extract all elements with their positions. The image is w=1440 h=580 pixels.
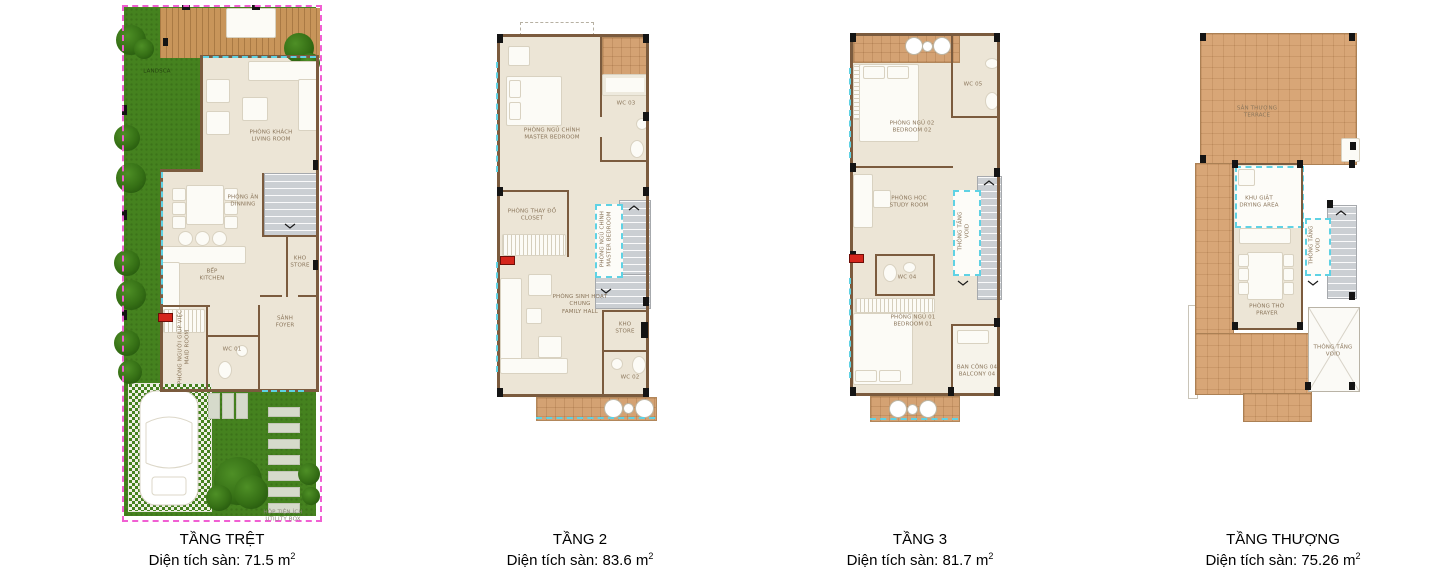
window-glass [849,68,853,158]
void-label-2: THÔNG TẦNGVOID [1314,345,1353,360]
column [1305,382,1311,390]
wardrobe [855,298,935,313]
room-label-maid: PHÒNG NGƯỜI GIÚP VIỆCMAID ROOM [178,310,193,384]
stair-arrow-icon [1307,280,1319,287]
balcony-table [907,404,918,415]
window-glass [496,262,500,372]
wall [951,33,953,118]
wall [600,37,602,117]
caption-floor-3: TẦNG 3 Diện tích sàn: 81.7 m2 [770,531,1070,569]
toilet [630,140,644,158]
void-label-master: PHÒNG NGỦ CHÍNHMASTER BEDROOM [600,211,615,267]
armchair [528,274,552,296]
column [643,34,649,43]
room-label-balcony04: BAN CÔNG 04BALCONY 04 [957,365,997,380]
caption-floor-2: TẦNG 2 Diện tích sàn: 83.6 m2 [430,531,730,569]
column [1200,33,1206,41]
stair-arrow-icon [957,280,969,287]
wall [875,294,935,296]
wall [997,33,1000,396]
wall [850,166,953,168]
wall [646,34,649,397]
plan-area: Diện tích sàn: 81.7 m2 [770,551,1070,569]
column [497,34,503,43]
column [1349,292,1355,300]
sink [903,262,916,273]
chair [873,190,891,208]
sink [611,358,623,370]
room-label-utility-box: HỘP TIỆN ÍCHUTILITY BOX [263,510,302,525]
balcony-rail-glass [536,417,655,421]
stair-arrow-icon [628,205,640,212]
room-label-landscape: LANDSCA [143,68,170,75]
dimension-marker [500,256,515,265]
room-label-bedroom01: PHÒNG NGỦ 01BEDROOM 01 [891,315,936,330]
column [643,297,649,306]
wall [1232,163,1234,330]
wall [1232,163,1303,165]
balcony-chair [604,399,623,418]
column [850,387,856,396]
balcony-chair [919,400,937,418]
pillow [855,370,877,382]
wardrobe [502,234,566,256]
terrace-bottom [1195,333,1312,395]
wall [951,324,1000,326]
column [1349,382,1355,390]
wc03-tile [602,37,648,75]
room-label-master-bedroom: PHÒNG NGỦ CHÍNHMASTER BEDROOM [524,128,580,143]
column [1200,155,1206,163]
column [1232,322,1238,330]
plan-area: Diện tích sàn: 83.6 m2 [430,551,730,569]
room-label-kitchen: BẾPKITCHEN [200,269,225,284]
chair [1238,254,1249,267]
column [850,33,856,42]
room-label-wc03: WC 03 [617,100,636,107]
armchair [508,46,530,66]
window-glass [496,62,500,172]
balcony-chair [889,400,907,418]
room-label-wc04: WC 04 [898,274,917,281]
chair [1283,268,1294,281]
armchair [538,336,562,358]
column [1349,160,1355,168]
column [994,387,1000,396]
wall [600,160,649,162]
wall [497,394,649,397]
pillow [509,80,521,98]
wall [1301,163,1303,330]
wall [875,254,935,256]
pillow [863,66,885,79]
floorplan-floor-2: PHÒNG NGỦ CHÍNHMASTER BEDROOM WC 03 PHÒN… [492,22,656,422]
column [994,318,1000,327]
toilet [632,356,646,374]
chair [1283,282,1294,295]
pillow [879,370,901,382]
wall [602,310,604,397]
plan-title: TẦNG 3 [770,531,1070,548]
column [1297,322,1303,330]
washing-machine [1238,169,1255,186]
chair [1238,282,1249,295]
side-table [526,308,542,324]
sofa [500,358,568,374]
room-label-closet: PHÒNG THAY ĐỒCLOSET [508,209,556,224]
room-label-foyer: SẢNHFOYER [276,316,295,331]
wall [951,116,1000,118]
wall [875,254,877,296]
dimension-marker [849,254,864,263]
plan-title: TẦNG TRỆT [72,531,372,548]
chair [1283,254,1294,267]
stair-arrow-icon [983,180,995,187]
toilet [883,264,897,282]
floorplan-floor-3: PHÒNG NGỦ 02BEDROOM 02 WC 05 PHÒNG HỌCST… [845,28,1005,424]
room-label-wc05: WC 05 [964,81,983,88]
column [948,387,954,396]
column [994,168,1000,177]
floorplan-sheet: LANDSCA PHÒNG KHÁCHLIVING ROOM PHÒNG ĂND… [0,0,1440,580]
column [994,33,1000,42]
stair-arrow-icon [1335,210,1347,217]
wall [850,33,1000,36]
balcony-chair [635,399,654,418]
chair [1238,268,1249,281]
room-label-prayer: PHÒNG THỜPRAYER [1249,304,1285,319]
wall [497,190,569,192]
terrace-bottom-ext [1243,393,1312,422]
column [497,187,503,196]
shaft [641,322,648,338]
room-label-bedroom02: PHÒNG NGỦ 02BEDROOM 02 [890,121,935,136]
wall [497,34,649,37]
bathtub [602,74,648,96]
pillow [509,102,521,120]
wall [1232,328,1303,330]
column [643,187,649,196]
plan-title: TẦNG 2 [430,531,730,548]
caption-roof-floor: TẦNG THƯỢNG Diện tích sàn: 75.26 m2 [1133,531,1433,569]
room-label-living: PHÒNG KHÁCHLIVING ROOM [250,130,293,145]
column [1297,160,1303,168]
terrace [1200,33,1357,165]
balcony-table [623,403,634,414]
column [1349,33,1355,41]
wall [951,324,953,396]
room-label-store: KHOSTORE [615,322,634,337]
plan-area: Diện tích sàn: 71.5 m2 [72,551,372,569]
column [497,388,503,397]
shaft [1350,142,1356,150]
column [1327,200,1333,208]
column [850,163,856,172]
column [643,112,649,121]
pillow [887,66,909,79]
room-label-store: KHOSTORE [290,256,309,271]
plan-area: Diện tích sàn: 75.26 m2 [1133,551,1433,569]
plan-title: TẦNG THƯỢNG [1133,531,1433,548]
floorplan-roof-floor: SÂN THƯỢNGTERRACE KHU GIẶTDRYING AREA PH… [1195,30,1360,425]
column [1232,160,1238,168]
wall [600,137,602,162]
planter [957,330,989,344]
wall [933,254,935,296]
void-label: THÔNG TẦNGVOID [958,212,973,251]
room-label-terrace: SÂN THƯỢNGTERRACE [1237,106,1277,121]
table [1247,252,1283,300]
caption-ground-floor: TẦNG TRỆT Diện tích sàn: 71.5 m2 [72,531,372,569]
desk [853,174,873,228]
wall [602,350,649,352]
room-label-wc01: WC 01 [223,346,242,353]
balcony-table [922,41,933,52]
room-label-family-hall: PHÒNG SINH HOẠT CHUNGFAMILY HALL [550,294,610,316]
balcony-chair [933,37,951,55]
room-label-study: PHÒNG HỌCSTUDY ROOM [890,196,929,211]
staircase [1327,205,1357,299]
balcony-chair [905,37,923,55]
room-label-dining: PHÒNG ĂNDINNING [228,195,259,210]
wall [850,393,1000,396]
floorplan-ground-floor: LANDSCA PHÒNG KHÁCHLIVING ROOM PHÒNG ĂND… [122,5,322,522]
room-label-drying-area: KHU GIẶTDRYING AREA [1239,196,1278,211]
void-label: THÔNG TẦNGVOID [1309,226,1324,265]
column [643,388,649,397]
counter [1239,228,1291,244]
wall [567,190,569,257]
window-glass [849,278,853,378]
balcony-rail-glass [870,418,958,422]
room-label-wc02: WC 02 [621,374,640,381]
